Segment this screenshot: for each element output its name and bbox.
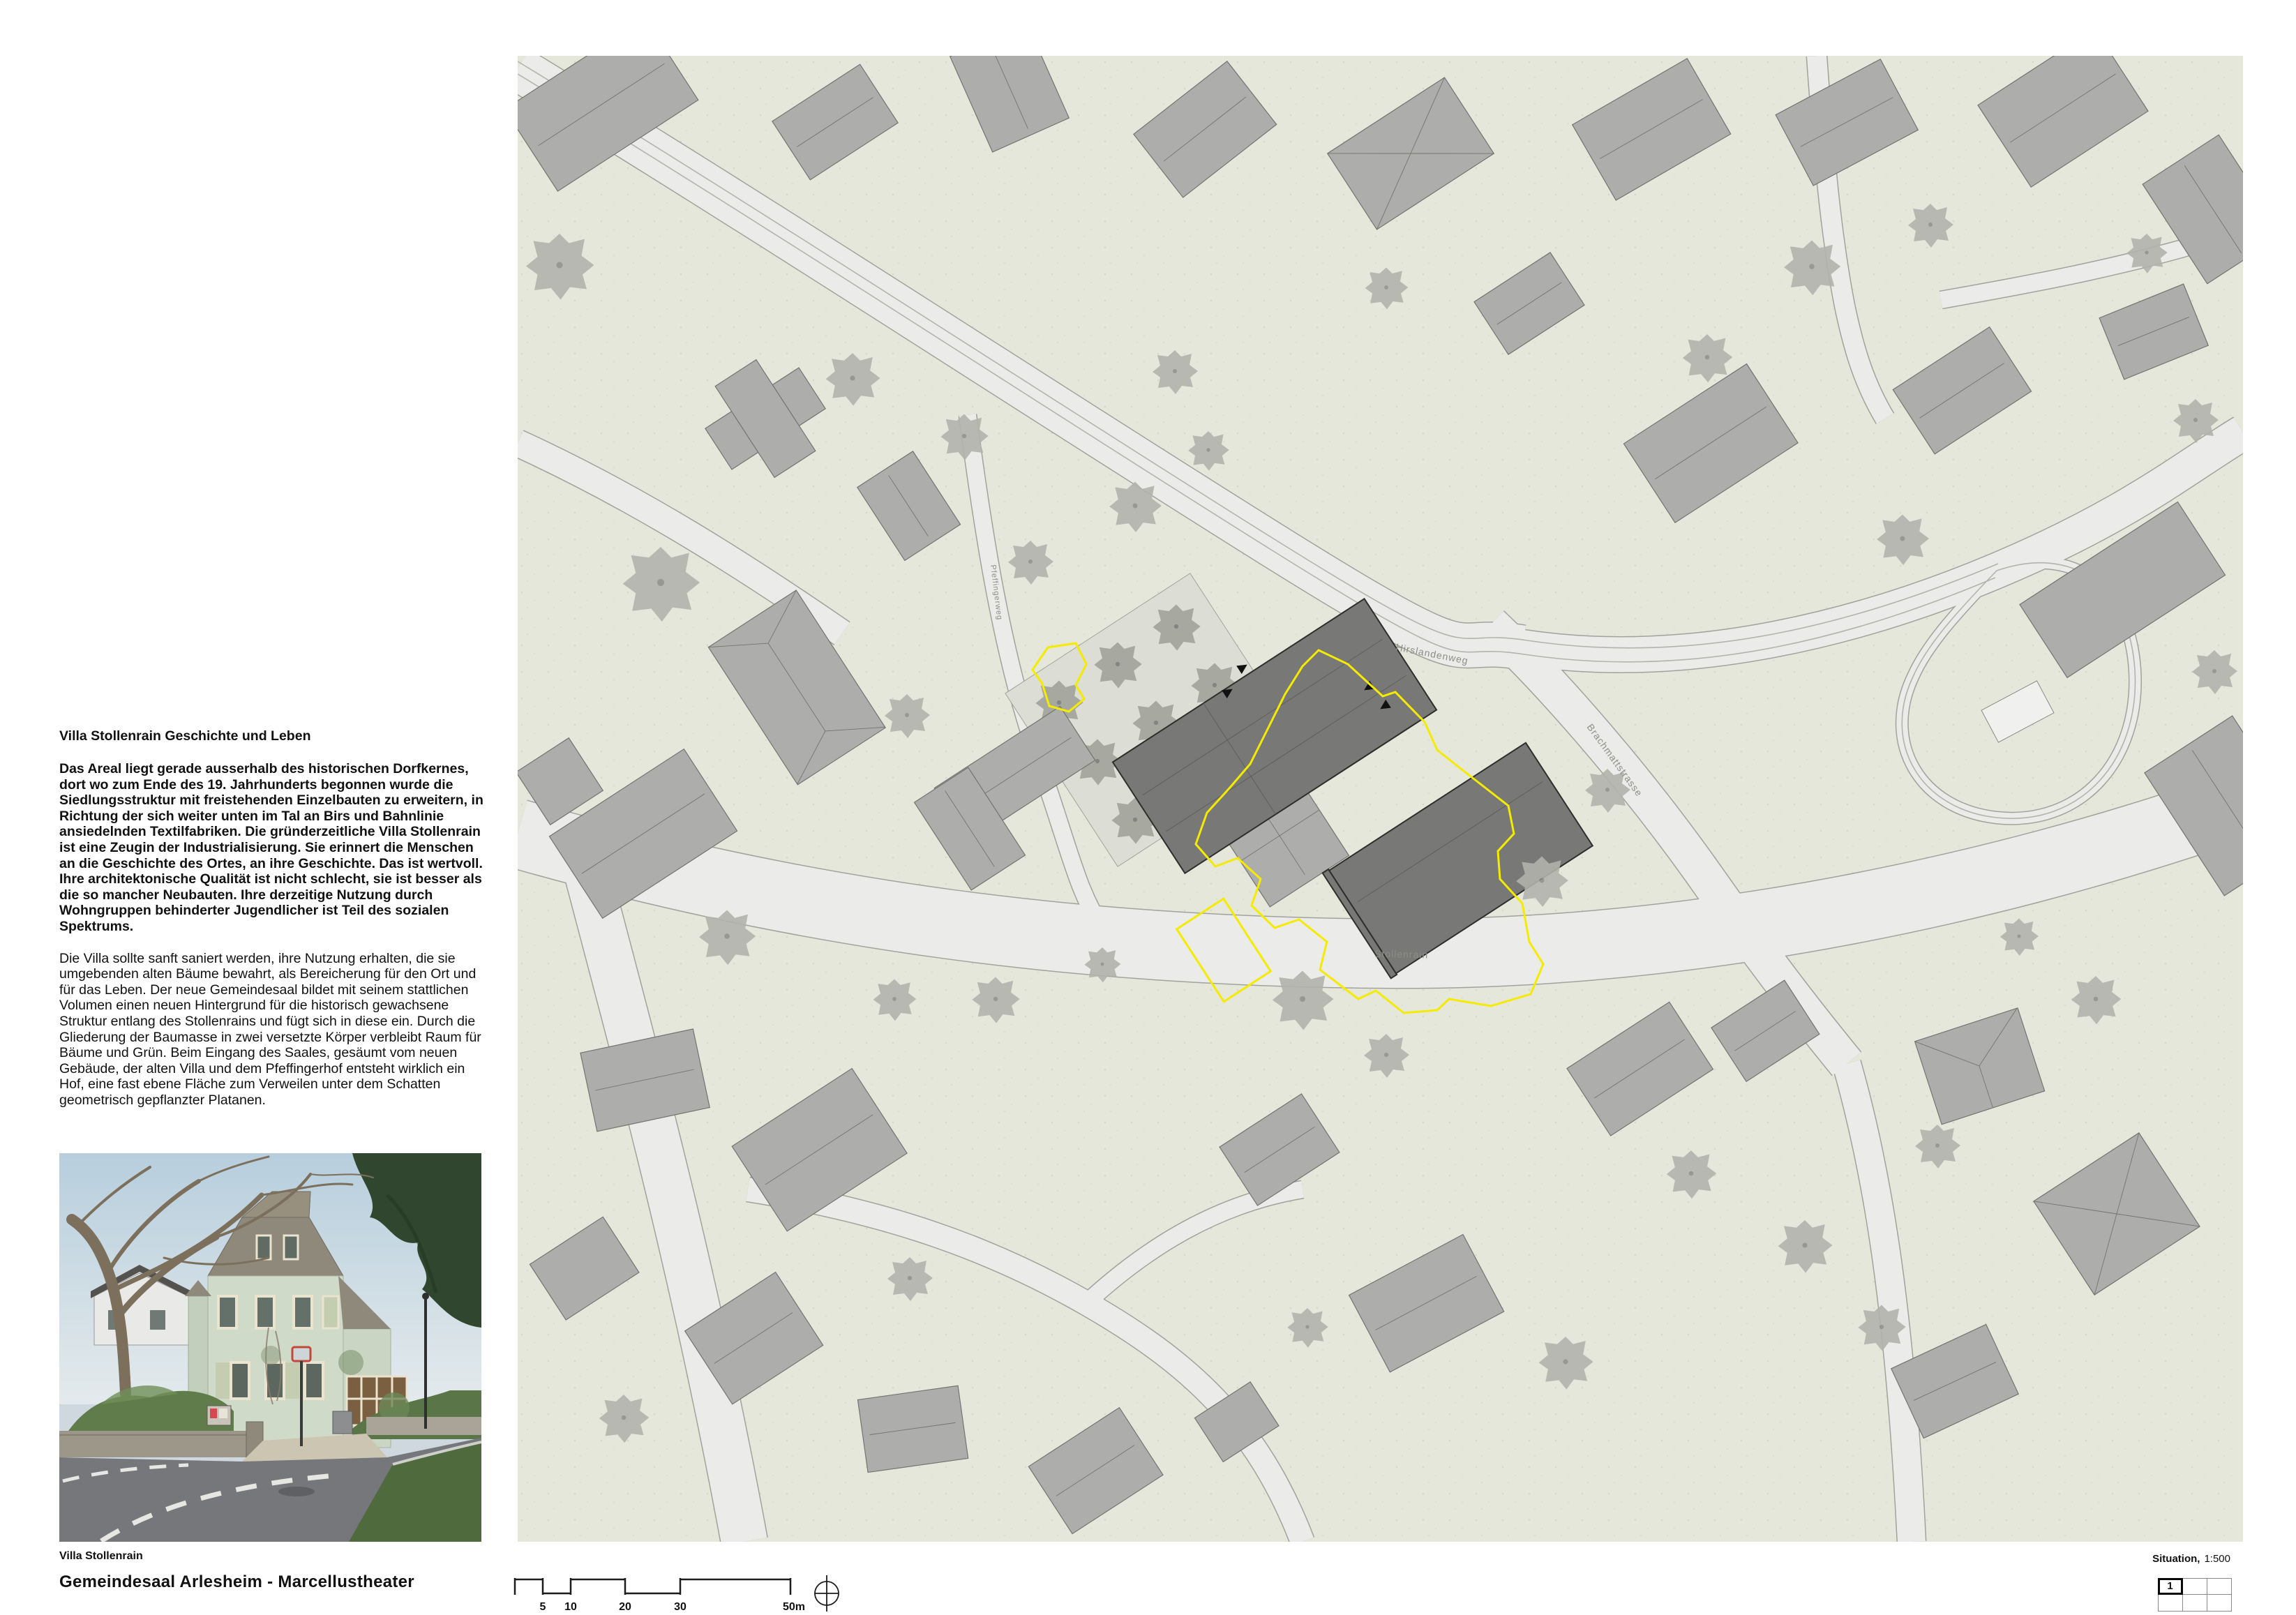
project-title: Gemeindesaal Arlesheim - Marcellustheate…: [59, 1572, 414, 1592]
noticeboard: [207, 1406, 231, 1425]
stone-wall-right: [366, 1417, 481, 1435]
north-arrow-icon: [815, 1575, 839, 1612]
page-index-grid: 1: [2158, 1578, 2231, 1611]
scale-label-5: 5: [540, 1601, 546, 1613]
scale-bar: 5 10 20 30 50m: [501, 1570, 850, 1615]
scale-label-10: 10: [564, 1601, 577, 1613]
plan-title: Situation,1:500: [2152, 1553, 2230, 1565]
site-plan: Hirslandenweg Brachmattstrasse Stollenra…: [518, 56, 2243, 1542]
presentation-sheet: Villa Stollenrain Geschichte und Leben D…: [0, 0, 2296, 1615]
scale-label-30: 30: [674, 1601, 686, 1613]
plan-title-scale: 1:500: [2204, 1553, 2230, 1565]
scale-label-20: 20: [619, 1601, 631, 1613]
essay-paragraph-regular: Die Villa sollte sanft saniert werden, i…: [59, 951, 490, 1109]
scale-label-50m: 50m: [783, 1601, 805, 1613]
essay-column: Villa Stollenrain Geschichte und Leben D…: [59, 728, 490, 1124]
plan-title-name: Situation,: [2152, 1553, 2200, 1565]
street-label-stollenrain: Stollenrain: [1374, 948, 1428, 960]
page-cell: [2182, 1578, 2207, 1595]
page-cell: [2158, 1594, 2183, 1612]
essay-paragraph-bold: Das Areal liegt gerade ausserhalb des hi…: [59, 761, 490, 935]
villa-photo-art: [59, 1153, 481, 1542]
page-cell: [2207, 1594, 2232, 1612]
page-cell: [2207, 1578, 2232, 1595]
mailboxes: [333, 1411, 352, 1434]
essay-title: Villa Stollenrain Geschichte und Leben: [59, 728, 490, 744]
page-cell-active: 1: [2158, 1578, 2183, 1595]
page-cell: [2182, 1594, 2207, 1612]
scale-bar-lines: [515, 1578, 790, 1595]
villa-photo: [59, 1153, 481, 1542]
photo-caption: Villa Stollenrain: [59, 1550, 143, 1563]
